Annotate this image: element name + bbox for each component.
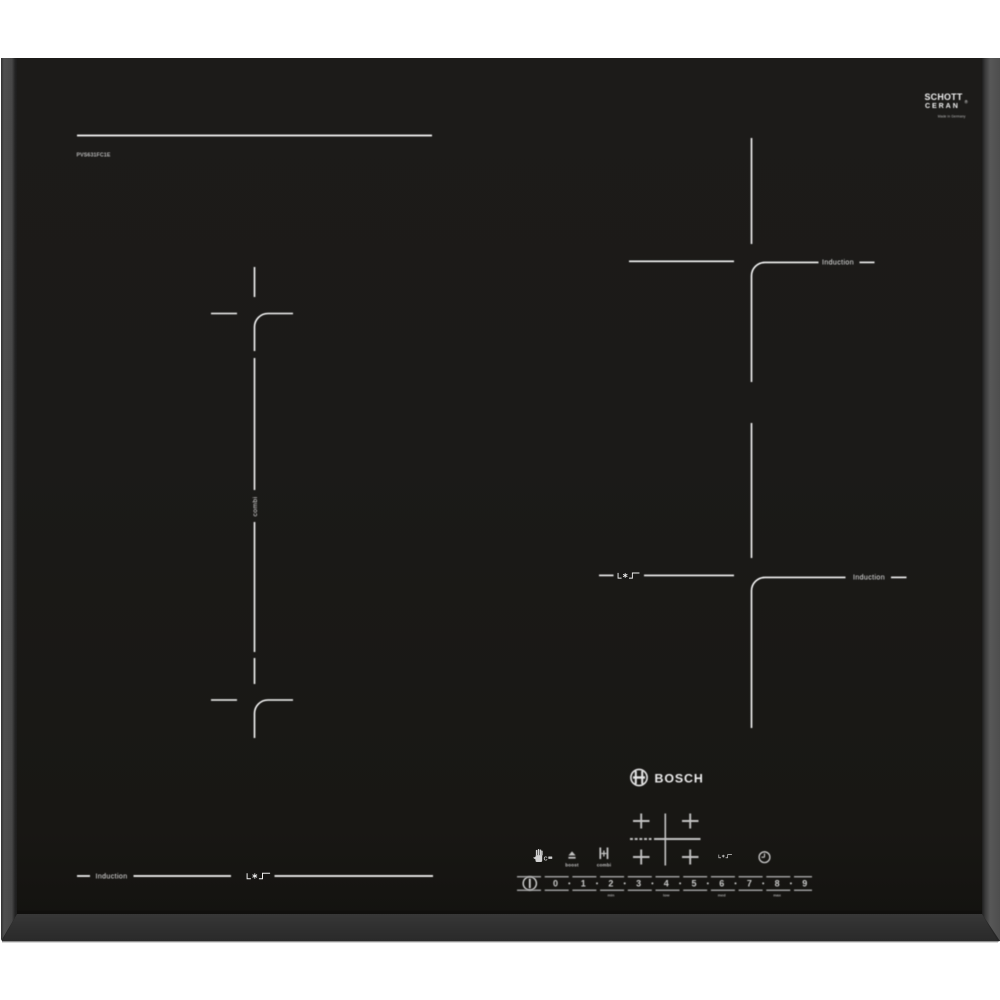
svg-text:2: 2 — [608, 879, 613, 889]
svg-text:C: C — [544, 857, 548, 863]
svg-text:0: 0 — [553, 879, 558, 889]
svg-text:1: 1 — [581, 879, 586, 889]
svg-text:3: 3 — [636, 879, 641, 889]
svg-text:combi: combi — [252, 496, 259, 516]
svg-text:4: 4 — [664, 879, 669, 889]
svg-text:PVS631FC1E: PVS631FC1E — [77, 153, 111, 159]
svg-text:9: 9 — [802, 879, 807, 889]
svg-text:Induction: Induction — [96, 873, 128, 880]
svg-text:6: 6 — [719, 879, 724, 889]
svg-text:boost: boost — [565, 863, 579, 868]
svg-text:BOSCH: BOSCH — [655, 772, 704, 786]
svg-text:5: 5 — [691, 879, 696, 889]
svg-text:med: med — [718, 892, 727, 897]
svg-text:min: min — [607, 892, 615, 897]
svg-text:combi: combi — [597, 863, 612, 868]
svg-text:Induction: Induction — [822, 260, 854, 267]
svg-text:max: max — [773, 892, 782, 897]
svg-text:8: 8 — [775, 879, 780, 889]
svg-text:Induction: Induction — [853, 575, 885, 582]
svg-text:Made in Germany: Made in Germany — [938, 115, 966, 119]
svg-text:low: low — [663, 892, 670, 897]
svg-text:SCHOTT: SCHOTT — [925, 92, 963, 102]
svg-text:7: 7 — [747, 879, 752, 889]
svg-text:CERAN: CERAN — [925, 102, 960, 110]
